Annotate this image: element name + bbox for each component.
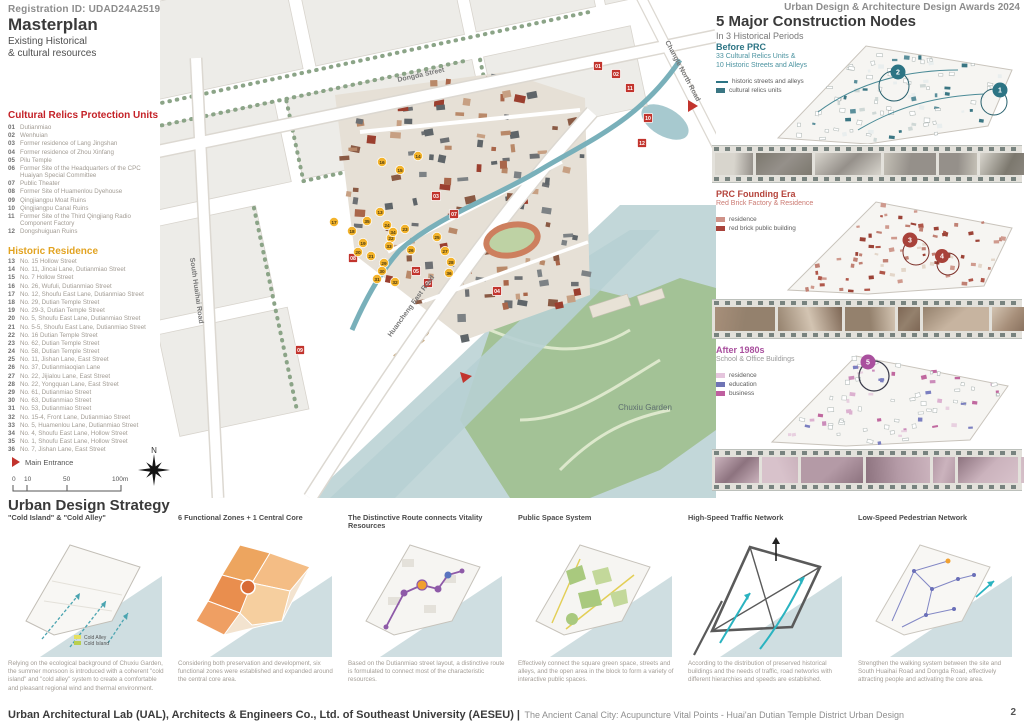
footer: Urban Architectural Lab (UAL), Architect… — [8, 705, 1016, 723]
registration-id: Registration ID: UDAD24A2519 — [8, 4, 160, 15]
card-text: Considering both preservation and develo… — [178, 660, 336, 685]
award-title: Urban Design & Architecture Design Award… — [715, 2, 1020, 13]
list-item: 12Dongshuiguan Ruins — [8, 228, 160, 235]
residence-list: 13No. 15 Hollow Street14No. 11, Jincai L… — [8, 258, 160, 455]
list-item: 22No. 16 Dutian Temple Street — [8, 332, 160, 339]
list-item: 25No. 11, Jishan Lane, East Street — [8, 356, 160, 363]
legend-item: business — [716, 390, 757, 397]
nodes-title: 5 Major Construction Nodes — [716, 13, 916, 30]
list-item: 32No. 15-4, Front Lane, Dutianmiao Stree… — [8, 414, 160, 421]
strategy-card-traffic: High-Speed Traffic Network According to … — [688, 514, 846, 693]
svg-text:14: 14 — [415, 154, 421, 160]
archival-photo — [958, 457, 1018, 483]
svg-text:16: 16 — [379, 160, 385, 166]
relics-list: 01Dutianmiao02Wenhuian03Former residence… — [8, 124, 160, 236]
card-caption: "Cold Island" & "Cold Alley" — [8, 514, 166, 531]
strategy-heading: Urban Design Strategy — [8, 497, 170, 514]
archival-photo — [715, 153, 753, 175]
svg-text:12: 12 — [639, 141, 645, 147]
prc-era-map: 3 4 — [768, 194, 1022, 300]
high-speed-traffic-diagram — [688, 531, 846, 657]
list-item: 13No. 15 Hollow Street — [8, 258, 160, 265]
svg-text:26: 26 — [408, 248, 414, 254]
list-item: 07Public Theater — [8, 180, 160, 187]
list-item: 02Wenhuian — [8, 132, 160, 139]
list-item: 33No. 5, Huamenlou Lane, Dutianmiao Stre… — [8, 422, 160, 429]
page-subtitle-1: Existing Historical — [8, 36, 87, 49]
svg-text:30: 30 — [379, 269, 385, 275]
page-number: 2 — [1010, 707, 1016, 718]
archival-photo — [933, 457, 955, 483]
list-item: 30No. 63, Dutianmiao Street — [8, 397, 160, 404]
svg-text:4: 4 — [940, 254, 944, 261]
svg-text:10: 10 — [24, 476, 32, 483]
list-item: 24No. 58, Dutian Temple Street — [8, 348, 160, 355]
card-text: Effectively connect the square green spa… — [518, 660, 676, 685]
list-item: 15No. 7 Hollow Street — [8, 274, 160, 281]
cold-island-diagram: Cold Alley Cold Island — [8, 531, 166, 657]
legend-item: residence — [716, 372, 757, 379]
svg-text:3: 3 — [908, 238, 912, 245]
entrance-label: Main Entrance — [25, 458, 73, 467]
list-item: 28No. 22, Yongquan Lane, East Street — [8, 381, 160, 388]
card-text: According to the distribution of preserv… — [688, 660, 846, 685]
archival-photo — [756, 153, 812, 175]
svg-text:2: 2 — [896, 70, 900, 77]
svg-text:23: 23 — [402, 227, 408, 233]
list-item: 18No. 29, Dutian Temple Street — [8, 299, 160, 306]
strategy-card-zones: 6 Functional Zones + 1 Central Core Cons… — [178, 514, 336, 693]
svg-text:50: 50 — [63, 476, 71, 483]
svg-text:15: 15 — [397, 168, 403, 174]
scale-bar: 0 10 50 100m — [8, 474, 138, 496]
svg-text:17: 17 — [331, 220, 337, 226]
footer-org: Urban Architectural Lab (UAL), Architect… — [8, 709, 520, 721]
card-caption: Public Space System — [518, 514, 676, 531]
list-item: 34No. 4, Shoufu East Lane, Hollow Street — [8, 430, 160, 437]
svg-text:36: 36 — [446, 271, 452, 277]
panel-1980s-legend: residenceeducationbusiness — [716, 372, 757, 399]
archival-photo — [845, 307, 895, 331]
strategy-card-cold: "Cold Island" & "Cold Alley" Cold Alley … — [8, 514, 166, 693]
list-item: 21No. 5-5, Shoufu East Lane, Dutianmiao … — [8, 324, 160, 331]
list-item: 03Former residence of Lang Jingshan — [8, 140, 160, 147]
page-subtitle-2: & cultural resources — [8, 48, 96, 61]
svg-text:13: 13 — [377, 210, 383, 216]
park-label: Chuxiu Garden — [618, 403, 672, 412]
card-caption: Low-Speed Pedestrian Network — [858, 514, 1016, 531]
strategy-card-public-space: Public Space System Effectively connect … — [518, 514, 676, 693]
footer-project: The Ancient Canal City: Acupuncture Vita… — [524, 710, 904, 720]
svg-text:29: 29 — [381, 261, 387, 267]
archival-photo — [992, 307, 1024, 331]
svg-text:18: 18 — [349, 229, 355, 235]
list-item: 01Dutianmiao — [8, 124, 160, 131]
list-item: 17No. 12, Shoufu East Lane, Dutianmiao S… — [8, 291, 160, 298]
north-arrow: N — [136, 444, 176, 496]
svg-text:32: 32 — [392, 280, 398, 286]
list-item: 09Qingjiangpu Moat Ruins — [8, 197, 160, 204]
svg-text:11: 11 — [627, 86, 633, 92]
public-space-diagram — [518, 531, 676, 657]
card-caption: High-Speed Traffic Network — [688, 514, 846, 531]
list-item: 10Qingjiangpu Canal Ruins — [8, 205, 160, 212]
list-item: 31No. 53, Dutianmiao Street — [8, 405, 160, 412]
pedestrian-network-diagram — [858, 531, 1016, 657]
svg-text:5: 5 — [866, 360, 870, 367]
photo-strip-1980s — [712, 449, 1022, 491]
archival-photo — [715, 307, 775, 331]
svg-text:31: 31 — [374, 277, 380, 283]
archival-photo — [923, 307, 989, 331]
svg-text:34: 34 — [390, 230, 396, 236]
residence-heading: Historic Residence — [8, 246, 98, 257]
svg-text:20: 20 — [355, 250, 361, 256]
archival-photo — [980, 153, 1024, 175]
legend-item: education — [716, 381, 757, 388]
svg-text:33: 33 — [386, 244, 392, 250]
svg-text:Cold Island: Cold Island — [84, 641, 109, 647]
list-item: 06Former Site of the Headquarters of the… — [8, 165, 160, 179]
svg-text:35: 35 — [364, 219, 370, 225]
card-text: Relying on the ecological background of … — [8, 660, 166, 693]
archival-photo — [801, 457, 863, 483]
card-text: Strengthen the walking system between th… — [858, 660, 1016, 685]
photo-strip-prc — [712, 299, 1022, 339]
svg-text:10: 10 — [645, 116, 651, 122]
list-item: 20No. 5, Shoufu East Lane, Dutianmiao St… — [8, 315, 160, 322]
archival-photo — [762, 457, 798, 483]
svg-text:05: 05 — [413, 269, 419, 275]
masterplan-map: 0102111012030708050604091314151617181920… — [160, 0, 716, 498]
list-item: 11Former Site of the Third Qingjiang Rad… — [8, 213, 160, 227]
distinctive-route-diagram — [348, 531, 506, 657]
relics-heading: Cultural Relics Protection Units — [8, 110, 158, 121]
main-entrance-legend: Main Entrance — [12, 457, 73, 467]
after-1980s-map: 5 — [756, 350, 1022, 448]
entrance-triangle-icon — [12, 457, 20, 467]
before-prc-map: 2 1 — [748, 40, 1022, 144]
svg-text:100m: 100m — [112, 476, 128, 483]
list-item: 29No. 61, Dutianmiao Street — [8, 389, 160, 396]
archival-photo — [939, 153, 977, 175]
page-title: Masterplan — [8, 15, 98, 35]
svg-text:19: 19 — [360, 241, 366, 247]
strategy-card-route: The Distinctive Route connects Vitality … — [348, 514, 506, 693]
functional-zones-diagram — [178, 531, 336, 657]
card-caption: The Distinctive Route connects Vitality … — [348, 514, 506, 531]
archival-photo — [815, 153, 881, 175]
card-caption: 6 Functional Zones + 1 Central Core — [178, 514, 336, 531]
list-item: 05Pilu Temple — [8, 157, 160, 164]
list-item: 14No. 11, Jincai Lane, Dutianmiao Street — [8, 266, 160, 273]
strategy-cards: "Cold Island" & "Cold Alley" Cold Alley … — [8, 514, 1016, 693]
list-item: 04Former residence of Zhou Xinfang — [8, 149, 160, 156]
strategy-card-pedestrian: Low-Speed Pedestrian Network Strengthen … — [858, 514, 1016, 693]
svg-text:08: 08 — [350, 256, 356, 262]
svg-text:28: 28 — [448, 260, 454, 266]
list-item: 19No. 29-3, Dutian Temple Street — [8, 307, 160, 314]
photo-strip-before-prc — [712, 145, 1022, 183]
list-item: 08Former Site of Huamenlou Dyehouse — [8, 188, 160, 195]
svg-text:09: 09 — [297, 348, 303, 354]
archival-photo — [778, 307, 842, 331]
svg-text:0: 0 — [12, 476, 16, 483]
svg-text:25: 25 — [434, 235, 440, 241]
svg-text:27: 27 — [442, 249, 448, 255]
svg-text:04: 04 — [494, 289, 500, 295]
svg-text:N: N — [151, 446, 157, 455]
svg-text:07: 07 — [451, 212, 457, 218]
svg-text:03: 03 — [433, 194, 439, 200]
svg-text:24: 24 — [384, 223, 390, 229]
svg-text:02: 02 — [613, 72, 619, 78]
archival-photo — [715, 457, 759, 483]
list-item: 16No. 26, Wufuli, Dutianmiao Street — [8, 283, 160, 290]
list-item: 27No. 22, Jijialou Lane, East Street — [8, 373, 160, 380]
svg-text:01: 01 — [595, 64, 601, 70]
archival-photo — [898, 307, 920, 331]
list-item: 23No. 62, Dutian Temple Street — [8, 340, 160, 347]
svg-text:1: 1 — [998, 88, 1002, 95]
archival-photo — [884, 153, 936, 175]
svg-text:21: 21 — [368, 254, 374, 260]
list-item: 26No. 37, Dutianmiaoqian Lane — [8, 364, 160, 371]
card-text: Based on the Dutianmiao street layout, a… — [348, 660, 506, 685]
archival-photo — [866, 457, 930, 483]
